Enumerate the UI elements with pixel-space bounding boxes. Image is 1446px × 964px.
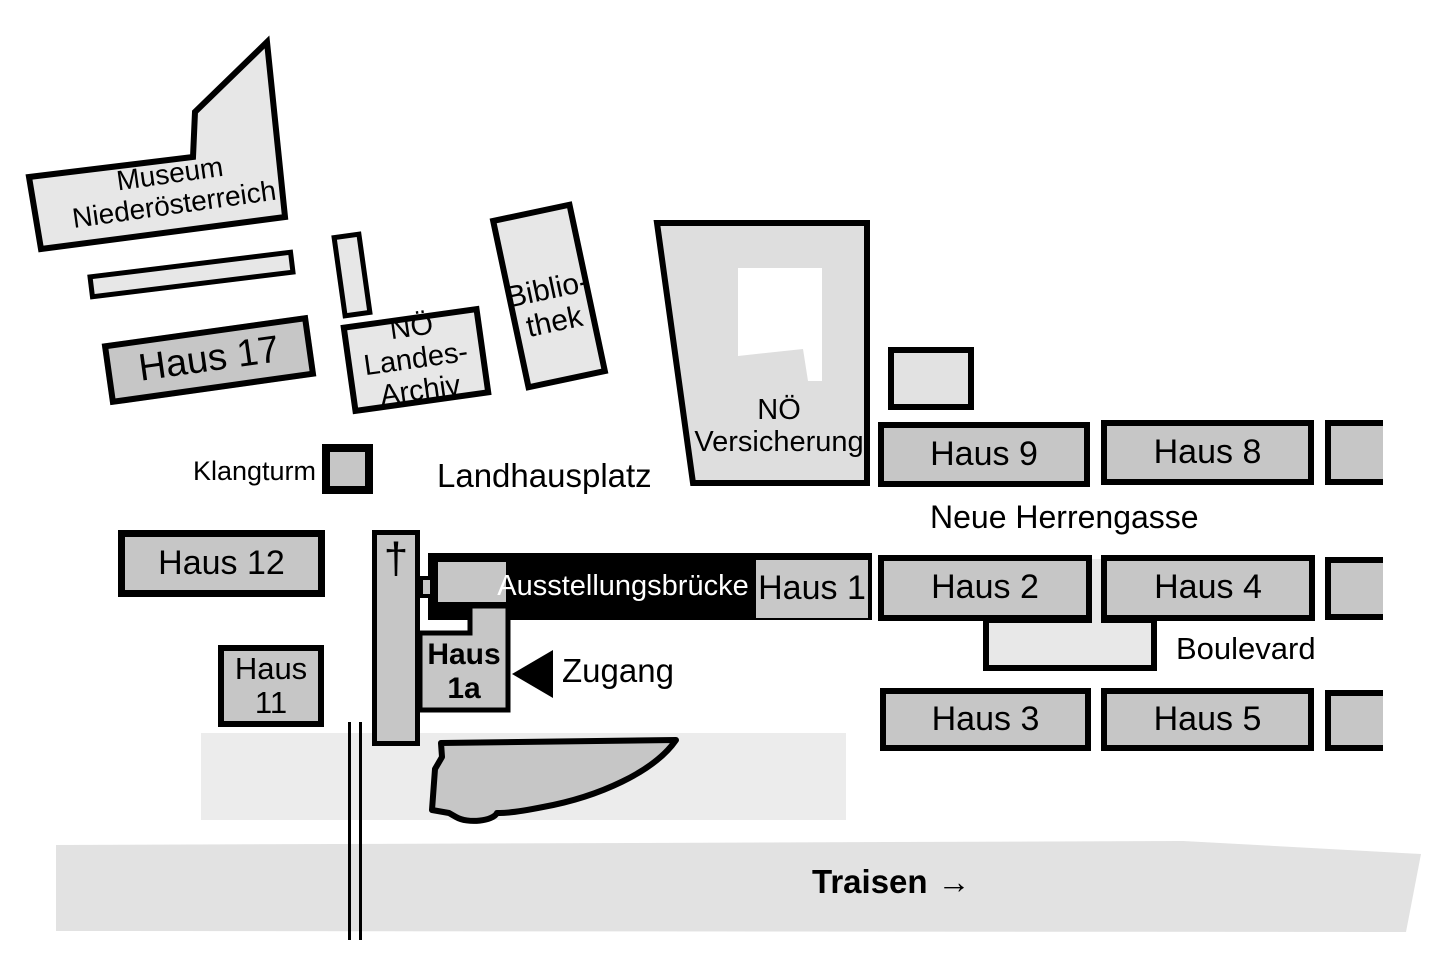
boulevard-label: Boulevard (1176, 632, 1316, 667)
cross-icon: † (384, 537, 408, 581)
ausstellungsbruecke-label: Ausstellungsbrücke (458, 553, 788, 620)
boulevard-connector (983, 617, 1157, 671)
haus-11-building: Haus 11 (218, 645, 324, 727)
traisen-label-text: Traisen (812, 864, 928, 901)
building-cut-off-row3 (1325, 690, 1383, 751)
klangturm-label: Klangturm (158, 456, 316, 486)
tower-connector (419, 576, 434, 598)
traisen-label: Traisen → (812, 864, 971, 901)
versicherung-label: NÖ Versicherung (690, 394, 868, 459)
haus-8-label: Haus 8 (1154, 434, 1262, 471)
haus-5-label: Haus 5 (1154, 701, 1262, 738)
haus-5-building: Haus 5 (1101, 688, 1314, 751)
building-cut-off-row1 (1325, 420, 1383, 485)
neue-herrengasse-label: Neue Herrengasse (930, 500, 1199, 536)
flow-direction-arrow-icon: → (938, 864, 971, 901)
haus-8-building: Haus 8 (1101, 420, 1314, 485)
haus-9-label: Haus 9 (930, 436, 1038, 473)
haus-11-label-line2: 11 (255, 686, 287, 720)
haus-3-label: Haus 3 (932, 701, 1040, 738)
kapellenturm-building: † (372, 530, 420, 746)
boulevard-gap-strip (1092, 559, 1101, 623)
zugang-arrow-icon (512, 650, 553, 698)
versicherung-label-line2: Versicherung (690, 426, 868, 458)
klangturm-building (322, 444, 373, 494)
landesarchiv-building: NÖ Landes- Archiv (340, 306, 491, 415)
haus-1a-label: Haus 1a (418, 638, 510, 705)
haus-4-label: Haus 4 (1154, 569, 1262, 606)
haus-2-label: Haus 2 (931, 569, 1039, 606)
haus-1a-label-line2: 1a (418, 672, 510, 706)
haus-2-building: Haus 2 (878, 555, 1092, 621)
zugang-label: Zugang (562, 653, 674, 690)
haus-9-building: Haus 9 (878, 422, 1090, 487)
haus-3-building: Haus 3 (880, 688, 1091, 751)
haus-17-label: Haus 17 (136, 329, 282, 390)
building-cut-off-row2 (1325, 557, 1383, 620)
landhausplatz-label: Landhausplatz (437, 458, 652, 495)
haus-4-building: Haus 4 (1101, 555, 1315, 621)
haus-1a-label-line1: Haus (418, 638, 510, 672)
traisen-river-band (56, 841, 1421, 932)
haus-12-building: Haus 12 (118, 530, 325, 597)
haus-12-label: Haus 12 (158, 545, 285, 582)
haus-11-label-line1: Haus (235, 652, 307, 686)
versicherung-label-line1: NÖ (690, 394, 868, 426)
site-map: Haus 17 NÖ Landes- Archiv Biblio- thek K… (0, 0, 1446, 964)
small-building-herrengasse (888, 347, 974, 410)
